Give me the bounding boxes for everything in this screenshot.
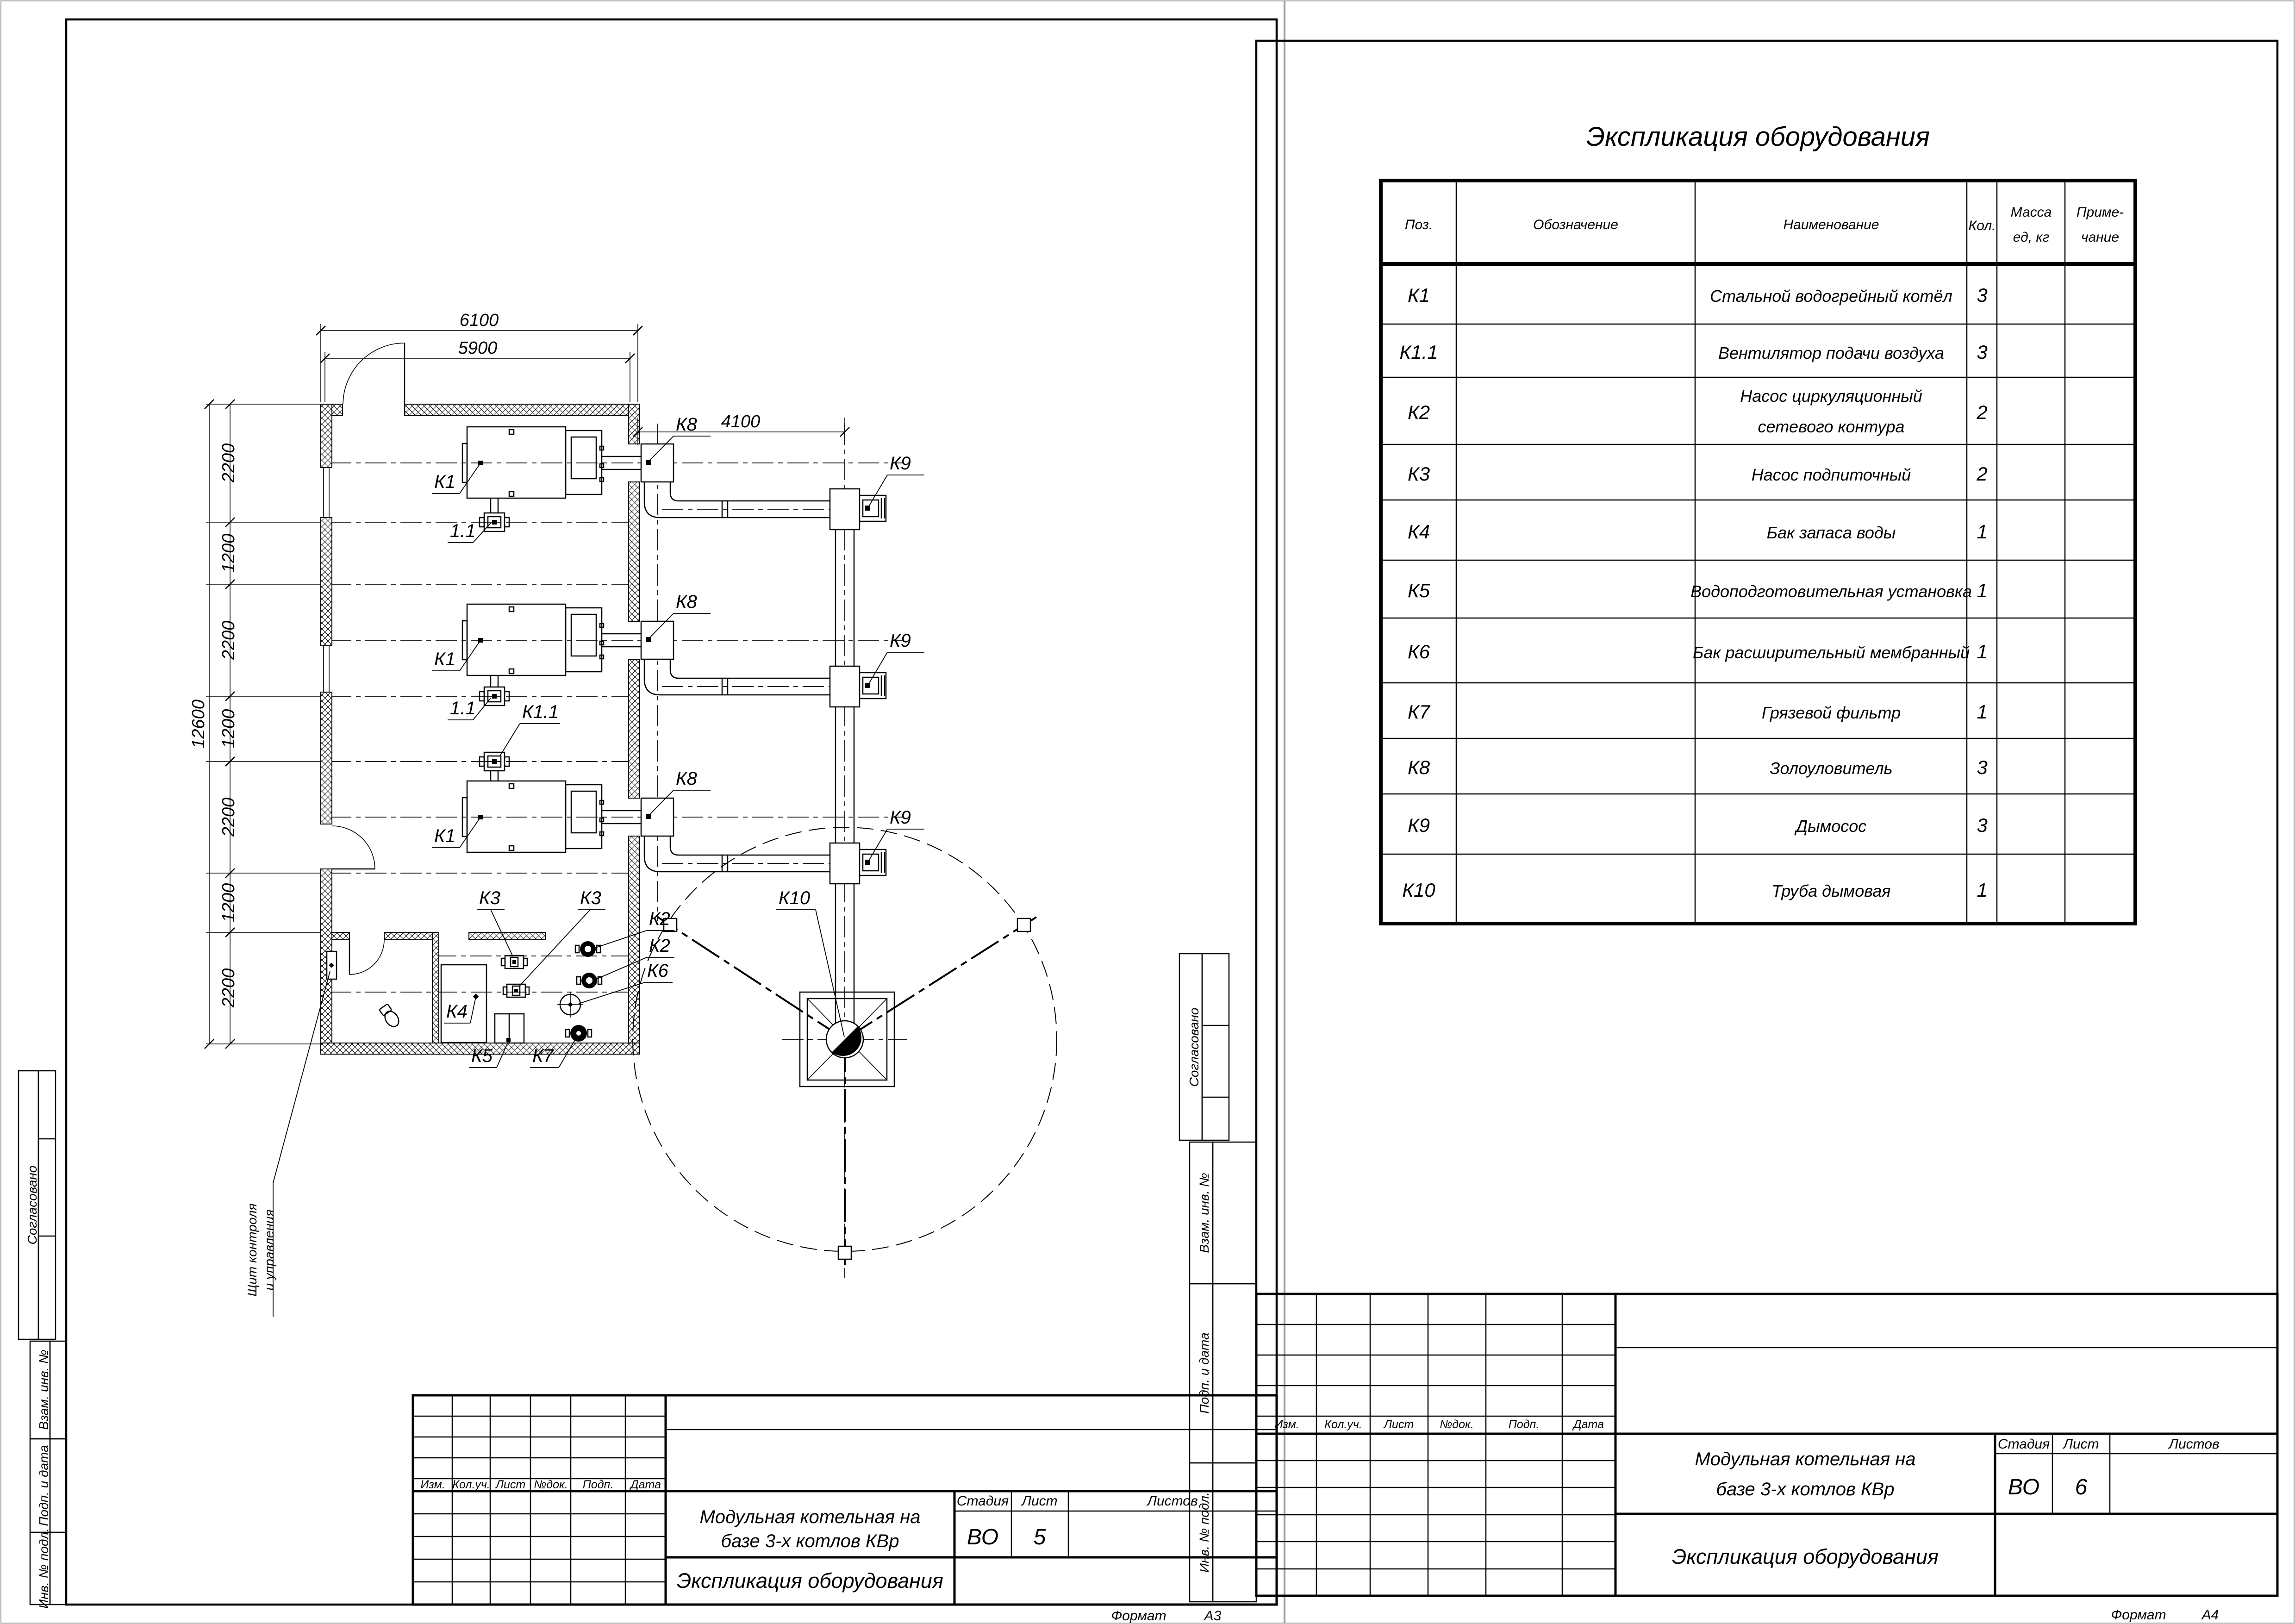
row-name: Дымосос — [1794, 817, 1867, 836]
row-qty: 3 — [1977, 814, 1987, 836]
tb-list-r: Лист — [1383, 1418, 1414, 1431]
th-designation: Обозначение — [1533, 217, 1618, 232]
th-mass-1: Масса — [2011, 205, 2052, 220]
dim-12600: 12600 — [189, 700, 208, 749]
tb-stage-value-r: ВО — [2008, 1475, 2039, 1499]
row-pos: К5 — [1408, 580, 1430, 601]
tb-ndok-r: №док. — [1440, 1418, 1474, 1431]
format-label-a4: Формат — [2111, 1607, 2166, 1623]
tb-koluch: Кол.уч. — [452, 1478, 490, 1491]
dim-bay-4: 2200 — [219, 968, 238, 1008]
format-value-a3: А3 — [1204, 1608, 1222, 1624]
th-note-2: чание — [2081, 230, 2119, 245]
row-name-2: сетевого контура — [1758, 417, 1904, 436]
stamp-inv-podl-r: Инв. № подл. — [1197, 1492, 1211, 1573]
label-k1-2: К1 — [434, 649, 455, 669]
drawing-canvas: Согласовано Взам. инв. № Подп. и дата Ин… — [0, 0, 2295, 1624]
row-name: Грязевой фильтр — [1762, 703, 1901, 722]
sheet-right-a4: Согласовано Взам. инв. № Подп. и дата Ин… — [1179, 1, 2294, 1623]
stamp-vzam-inv: Взам. инв. № — [37, 1349, 51, 1430]
row-pos: К1.1 — [1399, 341, 1438, 363]
label-k10: К10 — [779, 888, 810, 908]
th-qty: Кол. — [1969, 218, 1996, 233]
label-k9-1: К9 — [890, 453, 911, 474]
stamp-podp-data: Подп. и дата — [37, 1445, 51, 1526]
row-pos: К3 — [1408, 463, 1430, 485]
control-panel — [327, 951, 337, 979]
stamp-soglasovano-r: Согласовано — [1187, 1008, 1201, 1087]
label-k6: К6 — [647, 961, 669, 981]
row-name: Насос циркуляционный — [1740, 387, 1922, 406]
row-pos: К2 — [1408, 401, 1430, 423]
tb-izm-r: Изм. — [1274, 1418, 1299, 1431]
cad-drawing: Согласовано Взам. инв. № Подп. и дата Ин… — [0, 0, 2295, 1624]
row-qty: 3 — [1977, 341, 1987, 363]
row-name: Бак запаса воды — [1767, 523, 1896, 542]
label-k1-1: К1 — [434, 472, 455, 492]
row-qty: 3 — [1977, 284, 1987, 306]
format-value-a4: А4 — [2201, 1607, 2219, 1623]
dim-bay-2: 2200 — [219, 621, 238, 661]
label-k11: К1.1 — [522, 702, 559, 722]
tb-sheet-number: 5 — [1034, 1525, 1046, 1549]
tb-project-2-r: базе 3-х котлов КВр — [1716, 1479, 1895, 1499]
tb-podp: Подп. — [583, 1478, 614, 1491]
label-k8-3: К8 — [676, 768, 698, 789]
row-qty: 1 — [1977, 521, 1987, 543]
label-fan-1: 1.1 — [450, 521, 476, 541]
row-pos: К9 — [1408, 814, 1430, 836]
pump-k3-1 — [501, 956, 527, 968]
row-pos: К4 — [1408, 521, 1430, 543]
row-qty: 1 — [1977, 580, 1987, 601]
note-panel-1: Щит контроля — [245, 1203, 259, 1296]
tb-podp-r: Подп. — [1509, 1418, 1540, 1431]
tb-project-1-r: Модульная котельная на — [1695, 1449, 1915, 1469]
row-name: Бак расширительный мембранный — [1693, 643, 1970, 662]
tb-doc-title-r: Экспликация оборудования — [1672, 1545, 1939, 1568]
row-qty: 2 — [1976, 401, 1987, 423]
tb-data-r: Дата — [1572, 1418, 1604, 1431]
label-k3-1: К3 — [479, 888, 500, 908]
label-fan-2: 1.1 — [450, 698, 476, 718]
tb-ndok: №док. — [534, 1478, 568, 1491]
tb-sheet-number-r: 6 — [2075, 1475, 2088, 1499]
row-pos: К1 — [1408, 284, 1430, 306]
tb-izm: Изм. — [420, 1478, 445, 1491]
tb-list: Лист — [495, 1478, 525, 1491]
stamp-soglasovano: Согласовано — [25, 1166, 39, 1245]
row-qty: 2 — [1976, 463, 1987, 485]
dim-4100: 4100 — [721, 412, 761, 431]
paper-a4 — [1285, 1, 2294, 1623]
tb-stage-value: ВО — [967, 1525, 998, 1549]
label-k8-1: К8 — [676, 414, 698, 435]
row-name: Водоподготовительная установка — [1690, 582, 1972, 601]
row-qty: 1 — [1977, 701, 1987, 723]
row-qty: 3 — [1977, 756, 1987, 778]
dim-gap-2: 1200 — [219, 709, 238, 749]
dim-5900: 5900 — [458, 338, 498, 358]
label-k1-3: К1 — [434, 826, 455, 846]
label-k4: К4 — [446, 1001, 468, 1022]
tb-listov-r: Листов — [2168, 1437, 2219, 1452]
row-name: Насос подпиточный — [1752, 465, 1911, 484]
dim-6100: 6100 — [460, 311, 499, 330]
row-pos: К10 — [1402, 879, 1435, 901]
row-pos: К8 — [1408, 756, 1430, 778]
tb-list-h-r: Лист — [2062, 1437, 2099, 1452]
stamp-podp-data-r: Подп. и дата — [1197, 1332, 1211, 1413]
th-note-1: Приме- — [2077, 205, 2124, 220]
stamp-inv-podl: Инв. № подл. — [37, 1528, 51, 1609]
note-panel-2: и управления — [262, 1210, 276, 1291]
label-k3-2: К3 — [580, 888, 601, 908]
sheet-left-a3: Согласовано Взам. инв. № Подп. и дата Ин… — [1, 1, 1284, 1624]
row-name: Золоуловитель — [1770, 759, 1892, 778]
row-pos: К6 — [1408, 641, 1430, 662]
row-name: Вентилятор подачи воздуха — [1718, 344, 1944, 362]
th-name: Наименование — [1783, 217, 1879, 232]
stamp-vzam-inv-r: Взам. инв. № — [1197, 1173, 1211, 1253]
label-k9-3: К9 — [890, 807, 911, 828]
tb-stadia-r: Стадия — [1998, 1437, 2050, 1452]
tb-data: Дата — [629, 1478, 661, 1491]
label-k7: К7 — [532, 1046, 555, 1066]
tb-doc-title: Экспликация оборудования — [677, 1569, 943, 1593]
th-mass-2: ед, кг — [2013, 230, 2050, 245]
tb-project-2: базе 3-х котлов КВр — [721, 1531, 899, 1551]
row-name: Труба дымовая — [1771, 881, 1890, 900]
tb-list-h: Лист — [1021, 1493, 1057, 1509]
label-k2-1: К2 — [649, 909, 670, 929]
th-pos: Поз. — [1405, 217, 1433, 232]
row-qty: 1 — [1977, 879, 1987, 901]
format-label-a3: Формат — [1111, 1608, 1166, 1624]
label-k9-2: К9 — [890, 631, 911, 651]
dim-gap-1: 1200 — [219, 534, 238, 573]
pump-k3-2 — [503, 984, 529, 997]
tb-koluch-r: Кол.уч. — [1324, 1418, 1362, 1431]
dim-bay-3: 2200 — [219, 798, 238, 837]
tb-stadia: Стадия — [957, 1493, 1009, 1509]
table-title: Экспликация оборудования — [1586, 122, 1930, 152]
label-k2-2: К2 — [649, 936, 670, 956]
row-name: Стальной водогрейный котёл — [1710, 287, 1952, 306]
label-k5: К5 — [471, 1046, 493, 1066]
dim-gap-3: 1200 — [219, 883, 238, 923]
label-k8-2: К8 — [676, 592, 698, 612]
dim-bay-1: 2200 — [219, 443, 238, 483]
row-pos: К7 — [1408, 701, 1431, 723]
row-qty: 1 — [1977, 641, 1987, 662]
tb-project-1: Модульная котельная на — [699, 1507, 920, 1527]
